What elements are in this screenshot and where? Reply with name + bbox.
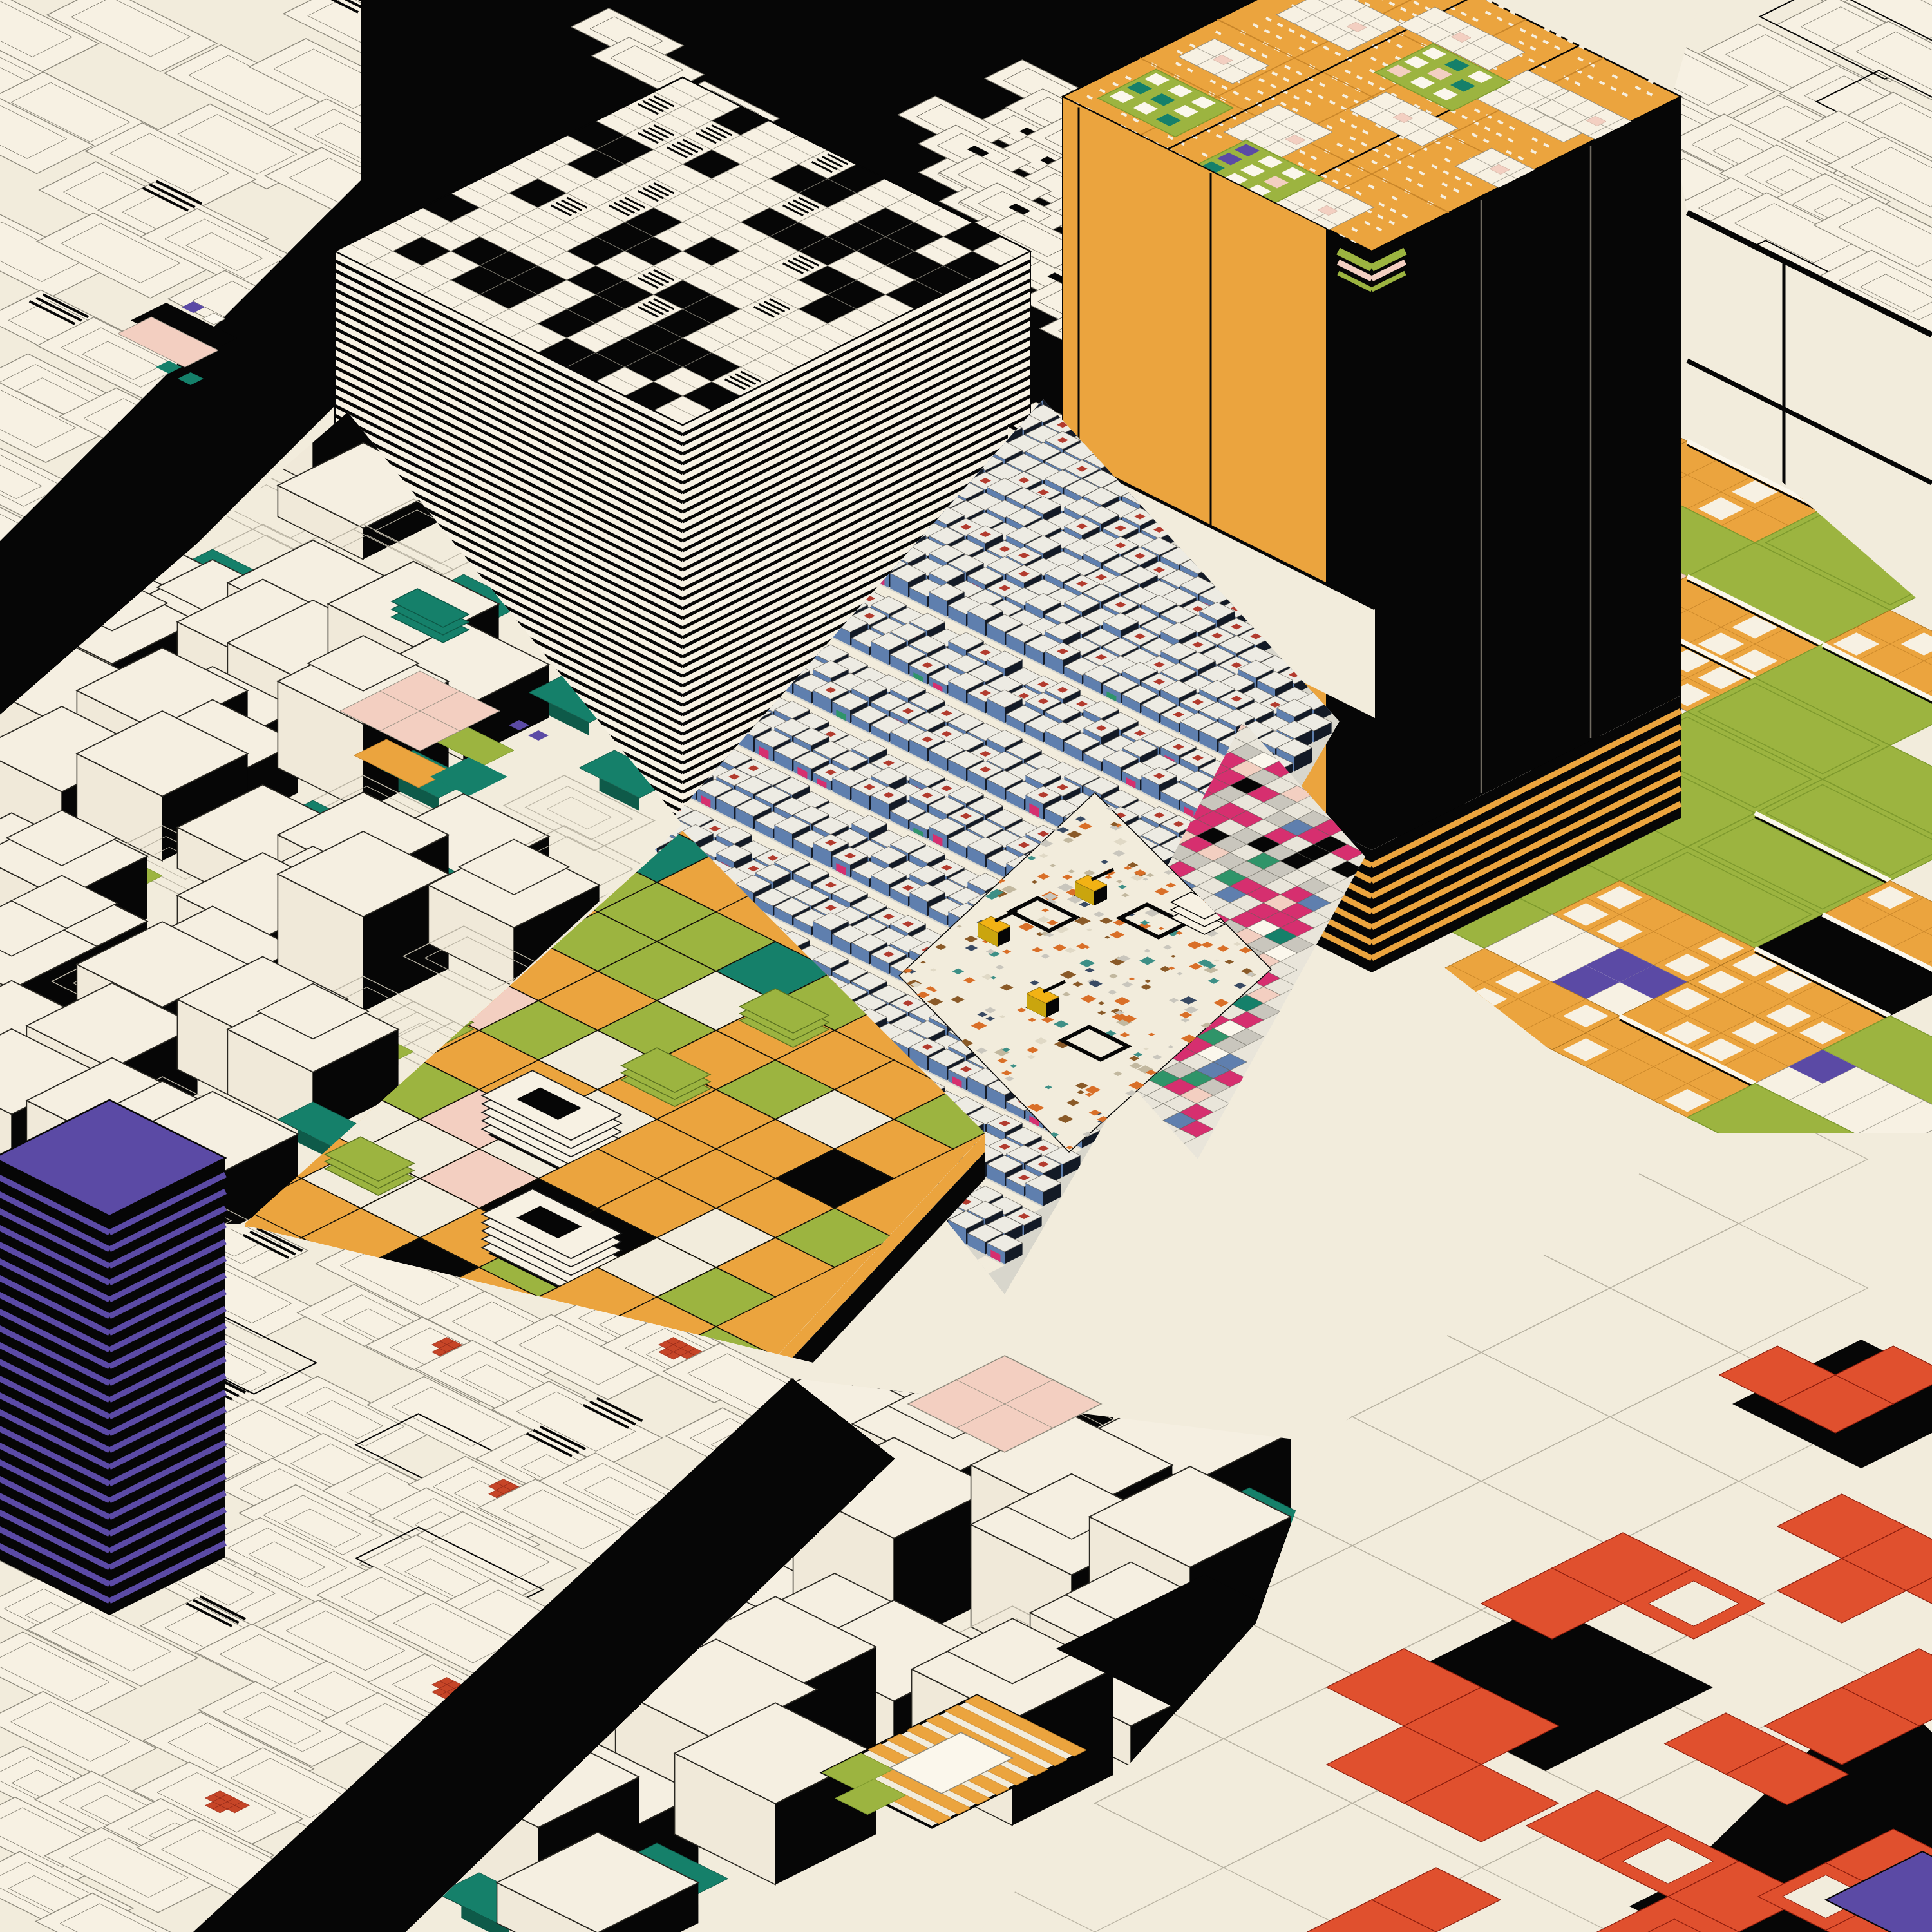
purple-archive-stack — [0, 1100, 225, 1615]
artwork-frame — [0, 0, 1932, 1932]
isometric-scene — [0, 0, 1932, 1932]
